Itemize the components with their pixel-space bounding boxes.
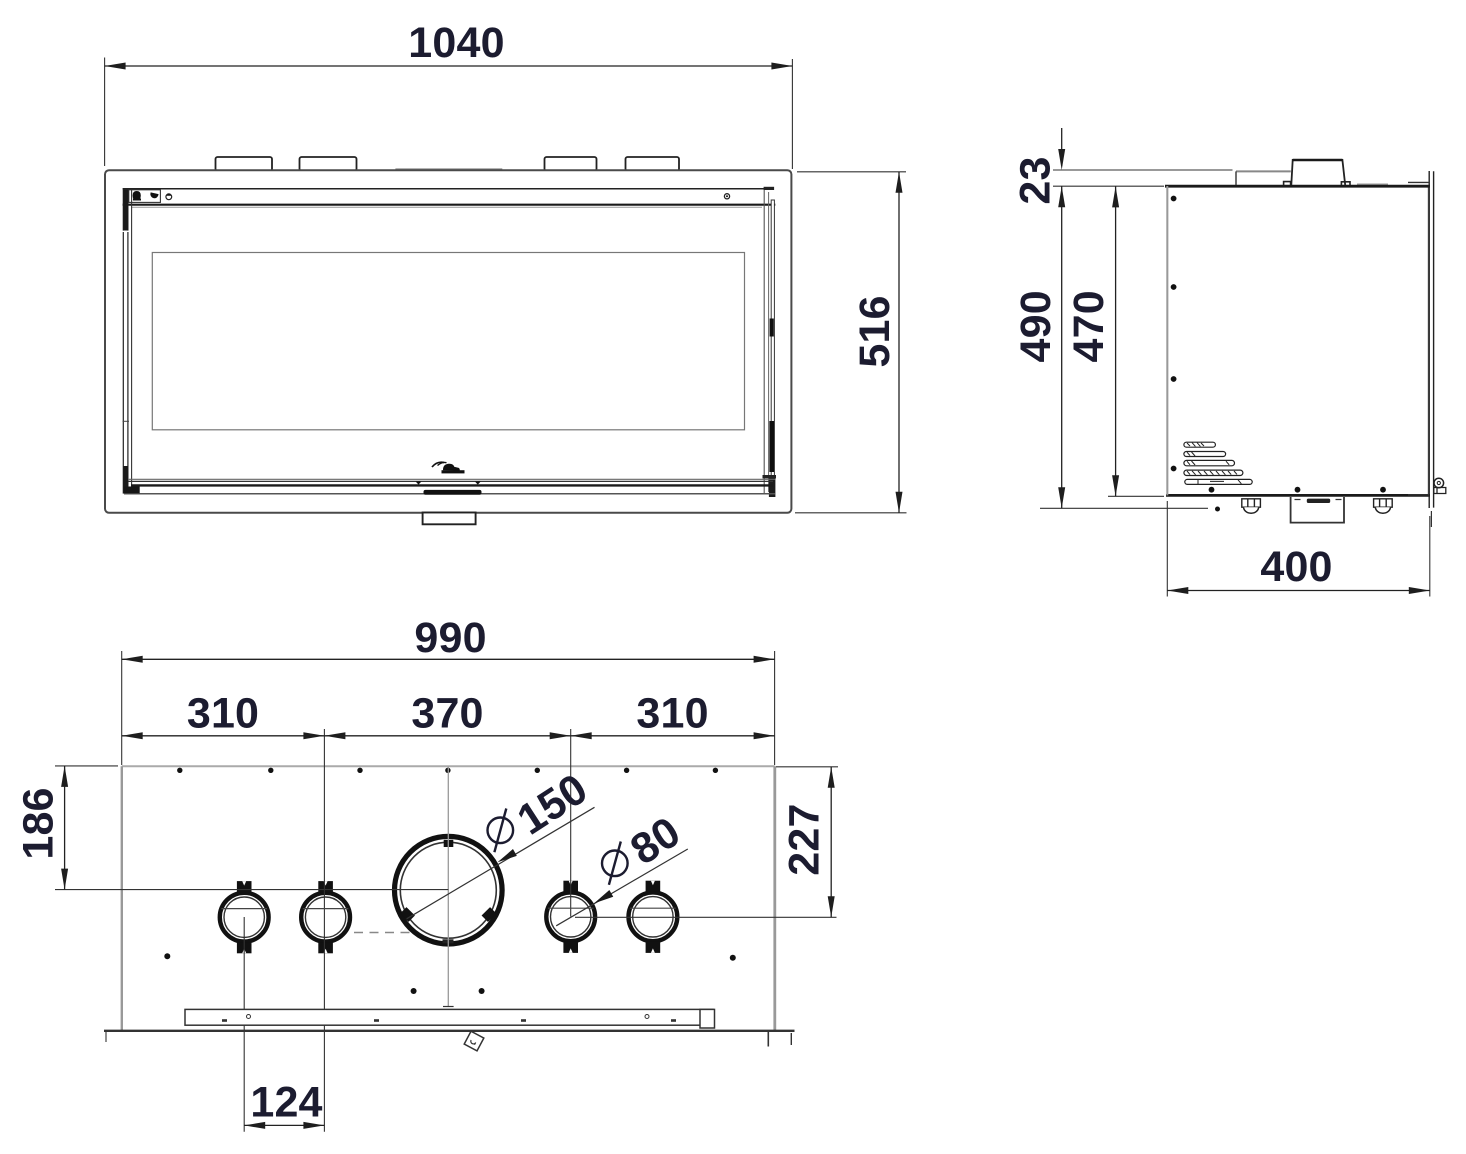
svg-text:990: 990 bbox=[414, 614, 486, 662]
svg-text:310: 310 bbox=[636, 690, 708, 738]
svg-text:370: 370 bbox=[411, 690, 483, 738]
svg-text:227: 227 bbox=[780, 803, 828, 875]
svg-text:310: 310 bbox=[187, 690, 259, 738]
svg-text:23: 23 bbox=[1011, 156, 1059, 204]
svg-text:516: 516 bbox=[851, 295, 899, 367]
svg-text:1040: 1040 bbox=[408, 19, 504, 67]
svg-text:400: 400 bbox=[1260, 543, 1332, 591]
svg-text:470: 470 bbox=[1065, 290, 1113, 362]
svg-text:490: 490 bbox=[1012, 290, 1060, 362]
svg-text:124: 124 bbox=[250, 1078, 322, 1126]
svg-text:186: 186 bbox=[14, 787, 62, 859]
